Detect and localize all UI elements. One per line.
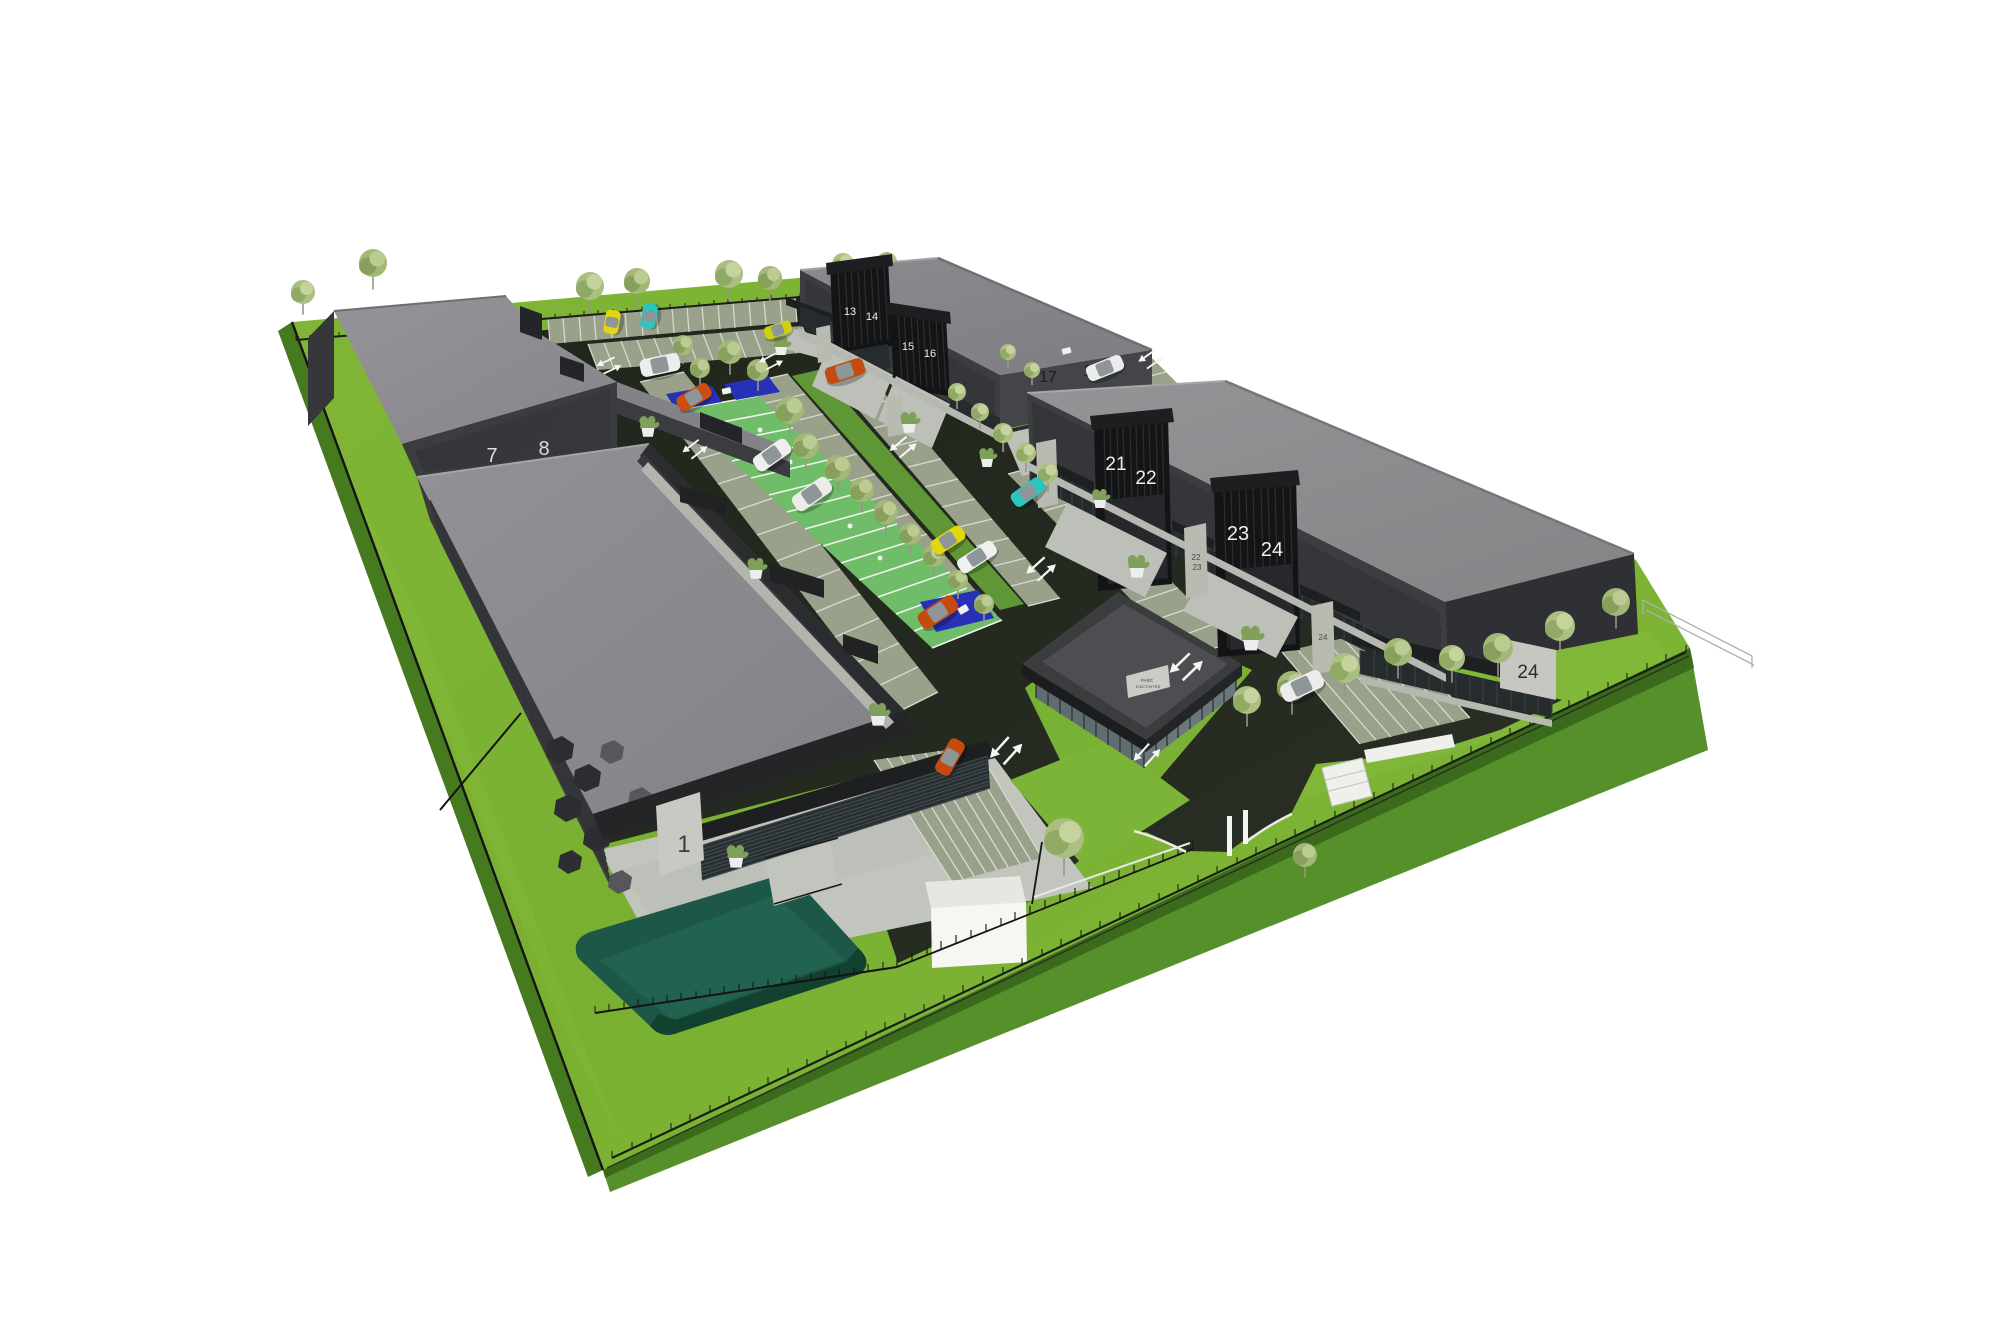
svg-text:23: 23 [1193, 563, 1202, 572]
svg-text:15: 15 [902, 341, 914, 353]
svg-text:24: 24 [1319, 633, 1328, 642]
svg-text:7: 7 [486, 445, 497, 467]
svg-text:8: 8 [538, 438, 549, 460]
svg-text:22: 22 [1135, 468, 1156, 489]
svg-text:23: 23 [1227, 523, 1249, 545]
svg-text:17: 17 [1039, 369, 1057, 386]
svg-text:22: 22 [1192, 553, 1201, 562]
svg-text:D'ACTIVITÉS: D'ACTIVITÉS [1136, 684, 1161, 689]
svg-text:13: 13 [844, 306, 856, 318]
svg-text:24: 24 [1261, 539, 1283, 561]
svg-text:21: 21 [1105, 454, 1126, 475]
svg-text:16: 16 [924, 348, 936, 360]
svg-text:1: 1 [677, 831, 690, 858]
svg-text:24: 24 [1517, 662, 1539, 683]
svg-text:PARC: PARC [1141, 678, 1154, 683]
svg-text:14: 14 [866, 311, 878, 323]
